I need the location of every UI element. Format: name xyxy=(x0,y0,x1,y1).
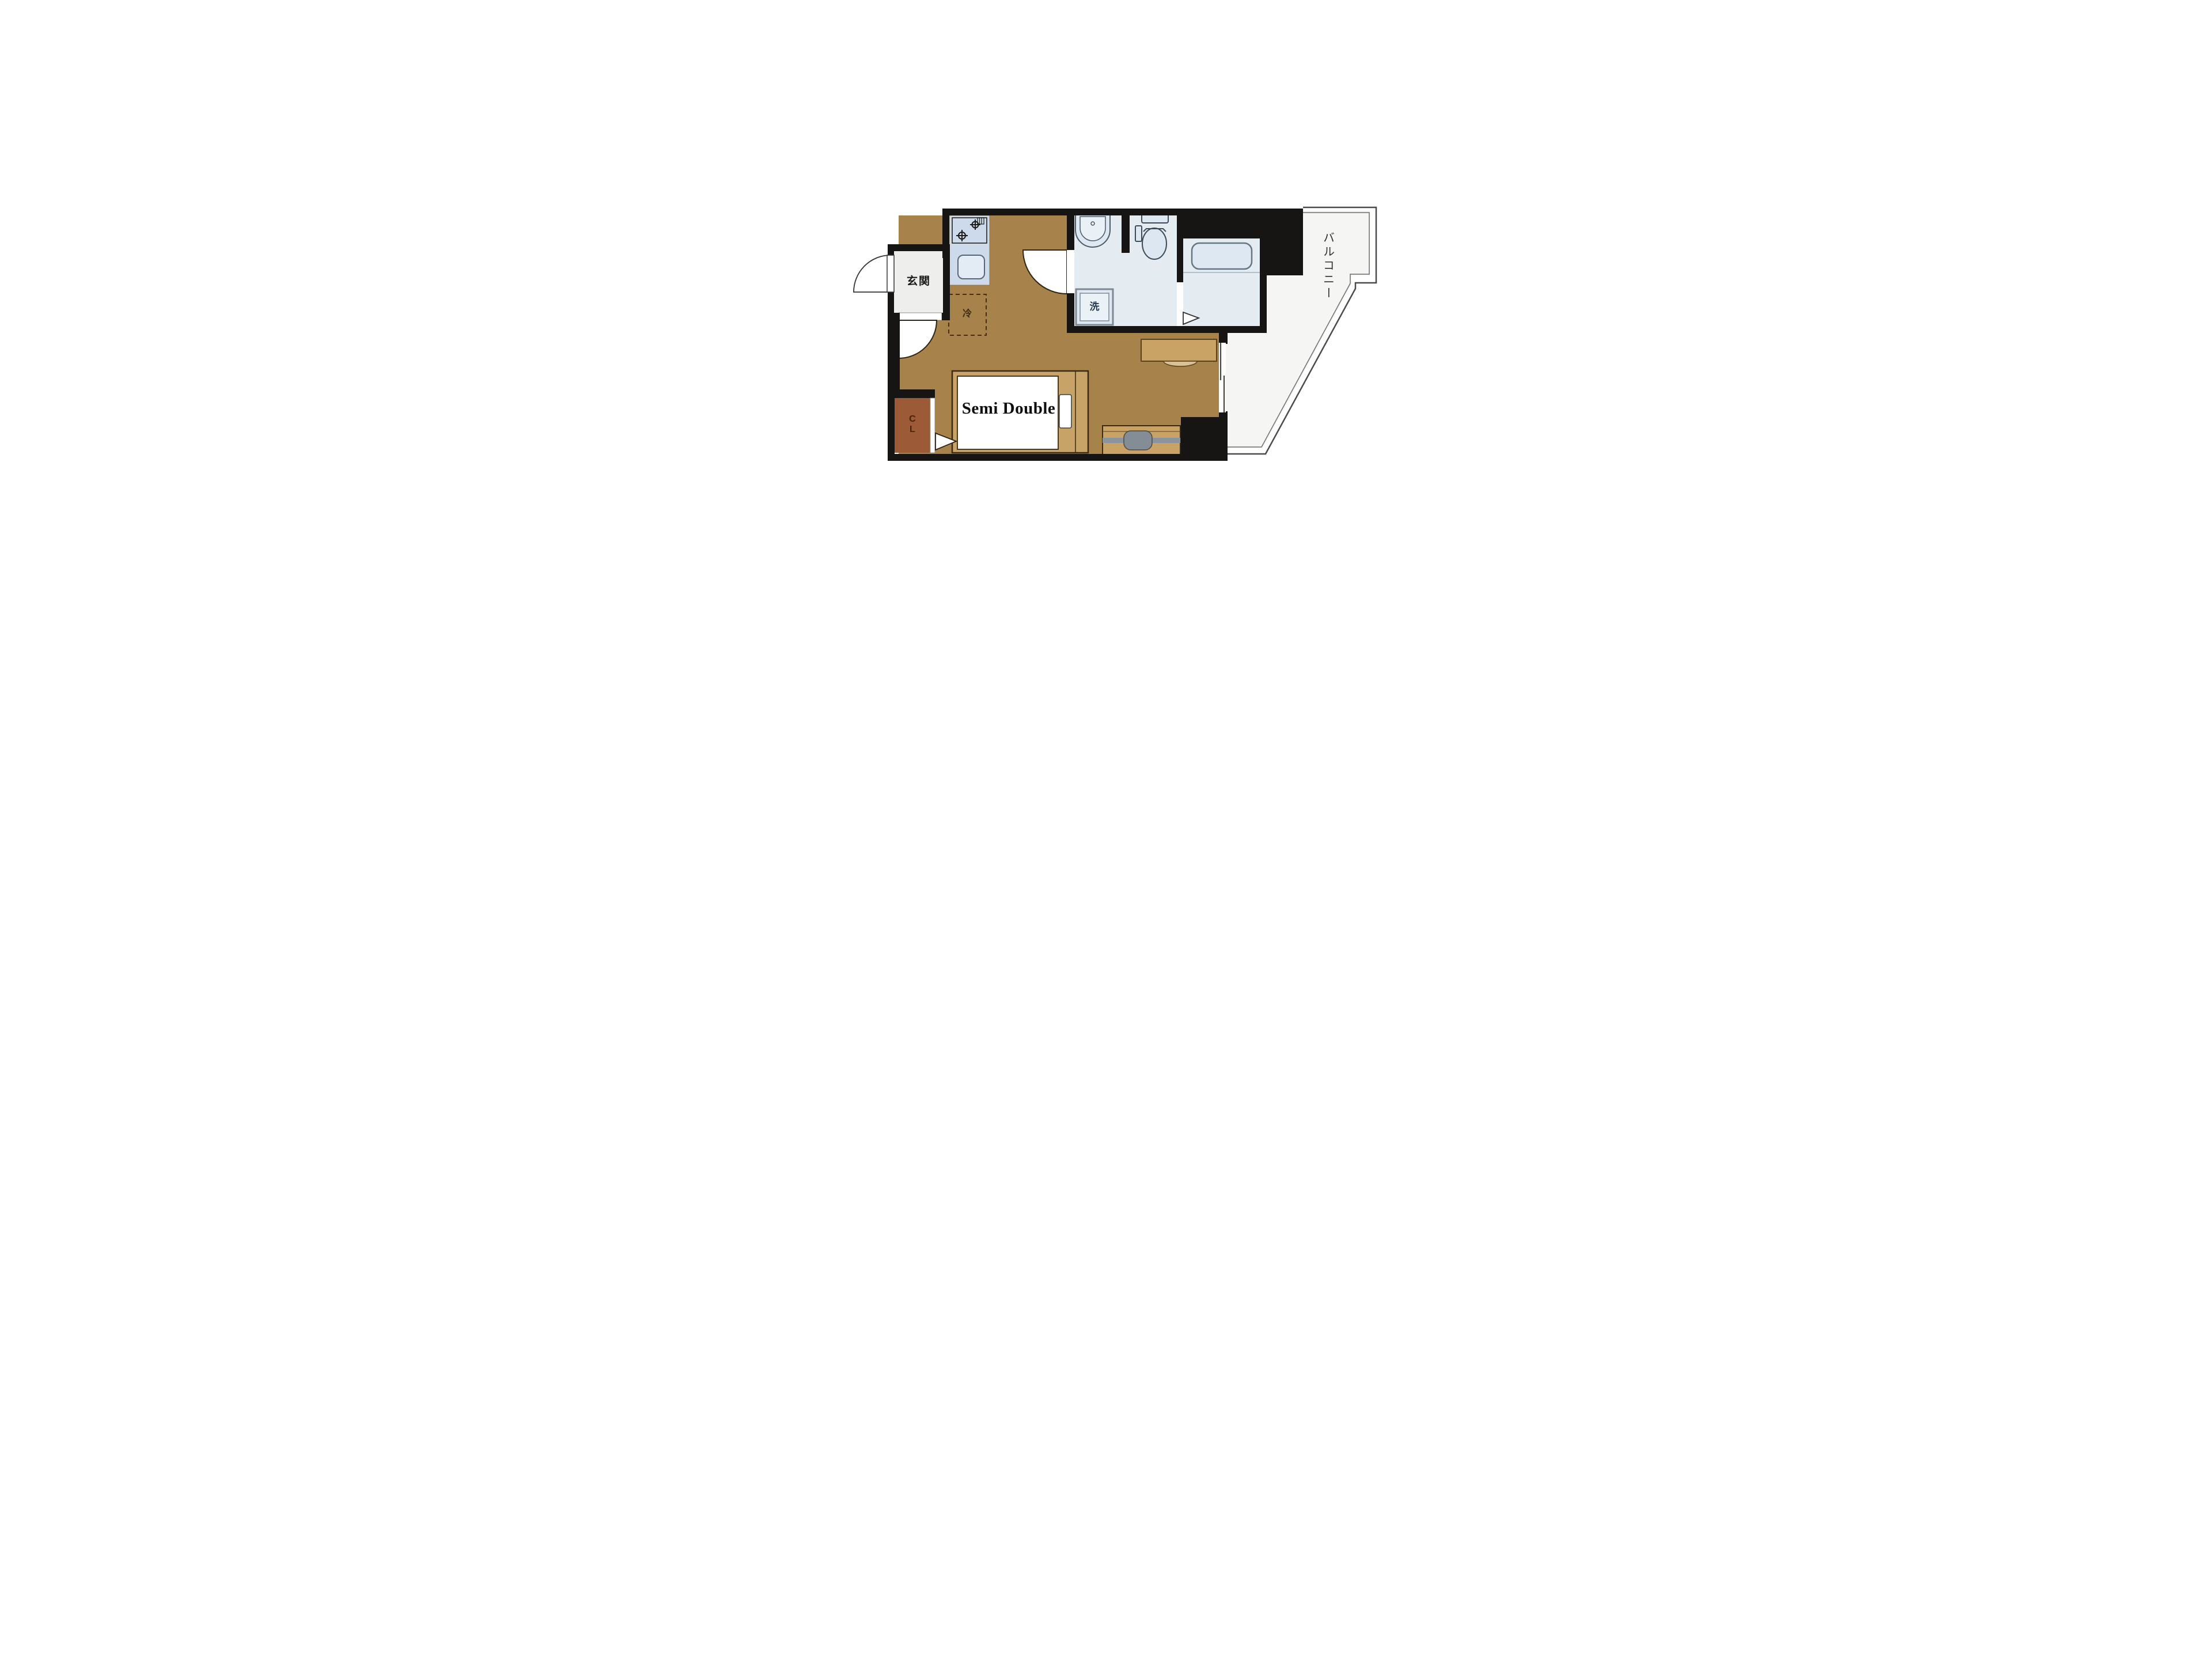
desk-icon xyxy=(1141,339,1217,361)
sliding-window-icon xyxy=(1219,343,1226,412)
wall-step-right xyxy=(942,313,950,320)
washbasin-icon xyxy=(1075,213,1110,247)
wall-washroom-left-upper xyxy=(1067,215,1074,250)
entrance-label: 玄関 xyxy=(907,276,931,287)
wall-block-right-of-bath xyxy=(1260,209,1303,275)
entrance-door-arc-icon xyxy=(854,255,891,292)
pillow-icon xyxy=(1059,395,1071,428)
bed-size-label: Semi Double xyxy=(962,400,1056,417)
kitchen-sink-icon xyxy=(958,255,984,279)
wall-entrance-right xyxy=(943,244,950,313)
wall-left-mid xyxy=(888,313,900,398)
refrigerator-label: 冷 xyxy=(963,310,972,320)
wall-washroom-right xyxy=(1177,209,1183,283)
entrance-door-leaf xyxy=(887,255,894,292)
wall-bottom xyxy=(888,454,1181,461)
wall-closet-left xyxy=(888,398,895,461)
tv-icon xyxy=(1124,431,1152,450)
wall-block-above-bath xyxy=(1183,209,1260,238)
wall-closet-top xyxy=(888,389,935,398)
washroom-doorway xyxy=(1067,250,1074,293)
wall-bath-bottom xyxy=(1067,326,1267,333)
floor-plan-canvas xyxy=(664,0,1548,664)
wall-washroom-left-lower xyxy=(1067,293,1074,326)
wall-entrance-top xyxy=(888,244,949,251)
washing-machine-label: 洗 xyxy=(1090,302,1100,312)
balcony-label: バルコニー xyxy=(1321,232,1334,301)
wall-corner-block xyxy=(1181,417,1228,461)
closet-label: CL xyxy=(907,414,917,435)
floor-plan-page: 玄関 冷 洗 CL Semi Double バルコニー xyxy=(664,0,1548,664)
bathtub-icon xyxy=(1192,243,1252,269)
tv-board xyxy=(1103,426,1180,454)
closet-door-leaf xyxy=(930,398,935,453)
wall-right-upper xyxy=(1219,333,1228,344)
wall-bath-right xyxy=(1260,238,1267,333)
entrance-step xyxy=(899,313,942,320)
wall-top xyxy=(944,209,1183,215)
wall-toilet-partition xyxy=(1122,215,1130,253)
bath-doorway xyxy=(1177,282,1183,326)
wall-entrance-left-lower xyxy=(888,291,894,313)
